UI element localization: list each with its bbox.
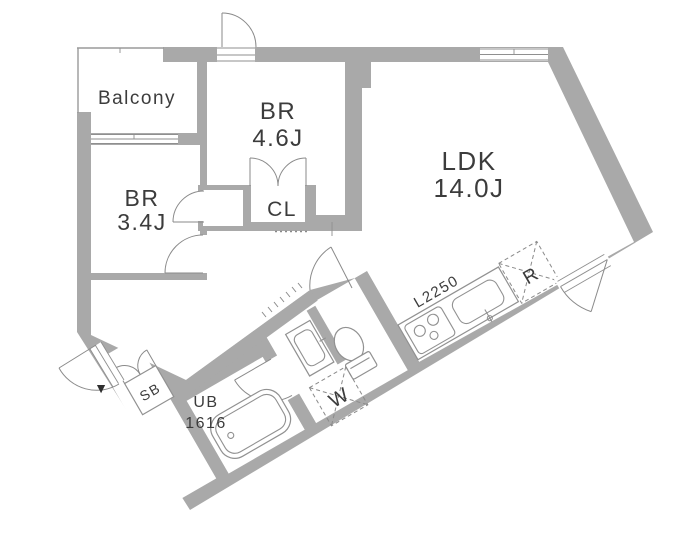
bedroom1-size: 4.6J (252, 125, 303, 152)
ldk-label: LDK (441, 146, 496, 176)
hallway-top-wall (311, 215, 362, 231)
bedroom1-label: BR (260, 98, 296, 125)
entrance-marker-icon: ▼ (94, 380, 108, 396)
bedroom2-bottom-wall (91, 273, 207, 280)
closet-label: CL (267, 198, 297, 221)
ldk-size: 14.0J (433, 173, 504, 203)
bedroom1-top-door-opening (217, 43, 255, 62)
floorplan-page: SB W L2250 R (0, 0, 686, 540)
floorplan-drawing: SB W L2250 R (0, 0, 686, 540)
bath-label: UB (193, 394, 218, 411)
bath-size: 1616 (185, 415, 227, 432)
bedroom2-size: 3.4J (117, 209, 166, 235)
bedroom2-door-opening (199, 235, 209, 273)
bedroom2-label: BR (125, 185, 160, 211)
bedroom1-top-door-swing (222, 13, 256, 47)
closet2-opening (196, 191, 207, 221)
balcony-label: Balcony (98, 88, 176, 109)
entrance-door-leaf (59, 345, 96, 368)
closet2-interior (203, 190, 243, 226)
